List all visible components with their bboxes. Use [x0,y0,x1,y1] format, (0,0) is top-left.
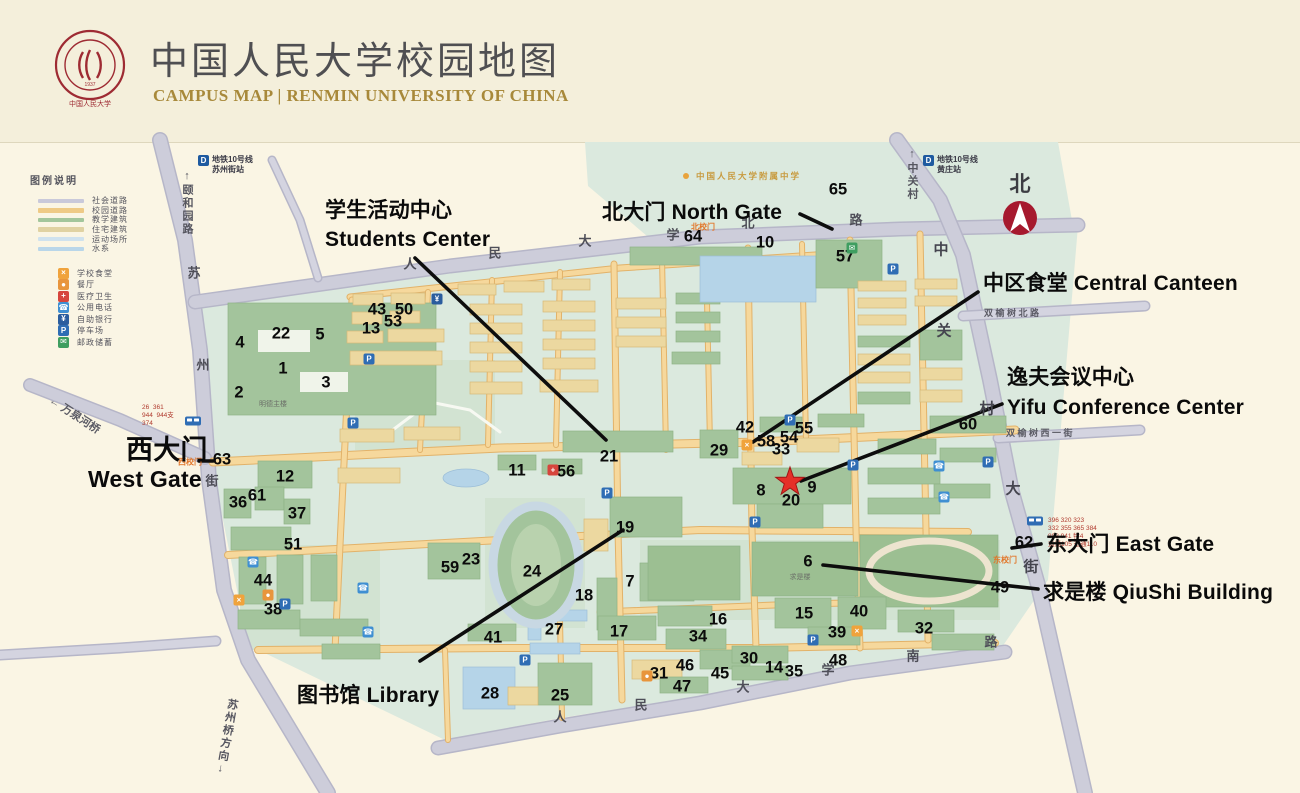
legend-icon-row: P停车场 [58,325,180,336]
building [311,555,337,601]
building [920,390,962,402]
building [838,597,886,629]
building [732,646,788,663]
building [350,351,442,365]
building [915,296,957,306]
building [940,448,996,462]
building [616,317,666,328]
parking-icon: P [58,325,69,336]
building [542,459,582,474]
legend-icon-row: ●餐厅 [58,279,180,290]
legend-icon-row: ☎公用电话 [58,302,180,313]
building [563,431,673,452]
page-title: 中国人民大学校园地图 [150,30,560,85]
campus-map-page: 1937 中国人民大学 中国人民大学校园地图 CAMPUS MAP | RENM… [0,0,1300,793]
building [239,557,266,604]
legend-row-5: 水系 [30,244,180,254]
building [598,616,656,640]
legend-color-swatch [38,237,84,242]
building [470,323,522,334]
building [224,489,251,518]
legend-label: 停车场 [77,325,104,336]
legend-area-items: 社会道路校园道路教学建筑住宅建筑运动场所水系 [30,196,180,254]
legend-label: 邮政储蓄 [77,337,113,348]
building [508,687,538,705]
building [391,293,425,304]
legend-icon-items: ×学校食堂●餐厅+医疗卫生☎公用电话¥自助银行P停车场✉邮政储蓄 [58,268,180,348]
map-legend: 图例说明 社会道路校园道路教学建筑住宅建筑运动场所水系 ×学校食堂●餐厅+医疗卫… [30,172,180,348]
building [404,427,460,440]
building [818,414,864,427]
legend-label: 公用电话 [77,302,113,313]
legend-color-swatch [38,227,84,232]
water-or-sports-building [700,256,816,302]
header: 1937 中国人民大学 中国人民大学校园地图 CAMPUS MAP | RENM… [0,0,1300,142]
building [898,610,954,632]
courtyard [258,330,310,352]
post-icon: ✉ [58,337,69,348]
building [676,312,720,323]
legend-label: 餐厅 [77,279,95,290]
building [538,663,592,705]
building [238,610,300,629]
building [616,298,666,309]
legend-icon-row: +医疗卫生 [58,291,180,302]
building [470,361,522,372]
building [338,468,400,483]
public-road [30,385,205,458]
legend-icon-row: ¥自助银行 [58,314,180,325]
legend-color-swatch [38,199,84,204]
building [543,320,595,331]
page-subtitle: CAMPUS MAP | RENMIN UNIVERSITY OF CHINA [153,86,569,106]
building [277,555,303,604]
compass-needle-icon [1000,198,1040,238]
legend-title: 图例说明 [30,172,180,187]
legend-label: 学校食堂 [77,268,113,279]
building [666,629,726,649]
building [284,499,310,524]
legend-color-swatch [38,247,84,252]
building [231,527,291,550]
building [775,598,831,628]
building [352,312,382,324]
courtyard [300,372,348,392]
building [258,461,312,488]
atm-icon: ¥ [58,314,69,325]
building [388,329,444,342]
university-seal-logo: 1937 中国人民大学 [52,28,128,110]
restaurant-icon: ● [58,279,69,290]
water-or-sports-building [530,643,580,654]
building [543,301,595,312]
building [934,484,990,498]
building [797,438,839,452]
building [428,543,480,579]
legend-icon-row: ×学校食堂 [58,268,180,279]
building [543,358,595,369]
building [632,660,682,679]
building [658,606,712,626]
building [676,331,720,342]
building [470,382,522,394]
legend-label: 水系 [92,243,110,254]
building [868,498,940,514]
canteen-icon: × [58,268,69,279]
building [700,430,738,458]
building [808,627,860,645]
legend-icon-row: ✉邮政储蓄 [58,337,180,348]
building [920,330,962,360]
building [458,284,496,295]
building [543,339,595,350]
phone-icon: ☎ [58,302,69,313]
building [340,429,394,442]
building [858,392,910,404]
building [616,336,666,347]
building [858,298,906,308]
building [915,279,957,289]
building [752,542,858,596]
medical-icon: + [58,291,69,302]
building [858,281,906,291]
building [255,487,284,510]
seal-year: 1937 [84,82,95,88]
pond [443,469,489,487]
building [932,634,994,650]
building [470,304,522,315]
building [660,677,708,693]
water-or-sports-building [463,667,515,709]
building [920,368,962,380]
building [347,331,383,343]
stadium-infield [511,524,561,606]
building [353,294,383,305]
building [757,504,823,528]
building [322,644,380,659]
legend-label: 自助银行 [77,314,113,325]
building [498,455,536,470]
building [552,279,590,290]
north-label: 北 [995,168,1045,198]
building [868,468,940,484]
building [648,546,740,600]
building [858,315,906,325]
legend-color-swatch [38,218,84,223]
building [858,372,910,383]
building [390,311,420,323]
legend-label: 医疗卫生 [77,291,113,302]
building [504,281,544,292]
legend-color-swatch [38,208,84,213]
seal-script: 中国人民大学 [69,99,111,108]
building [742,452,782,465]
building [732,666,788,680]
building [672,352,720,364]
building [300,619,368,636]
north-compass: 北 [995,168,1045,243]
